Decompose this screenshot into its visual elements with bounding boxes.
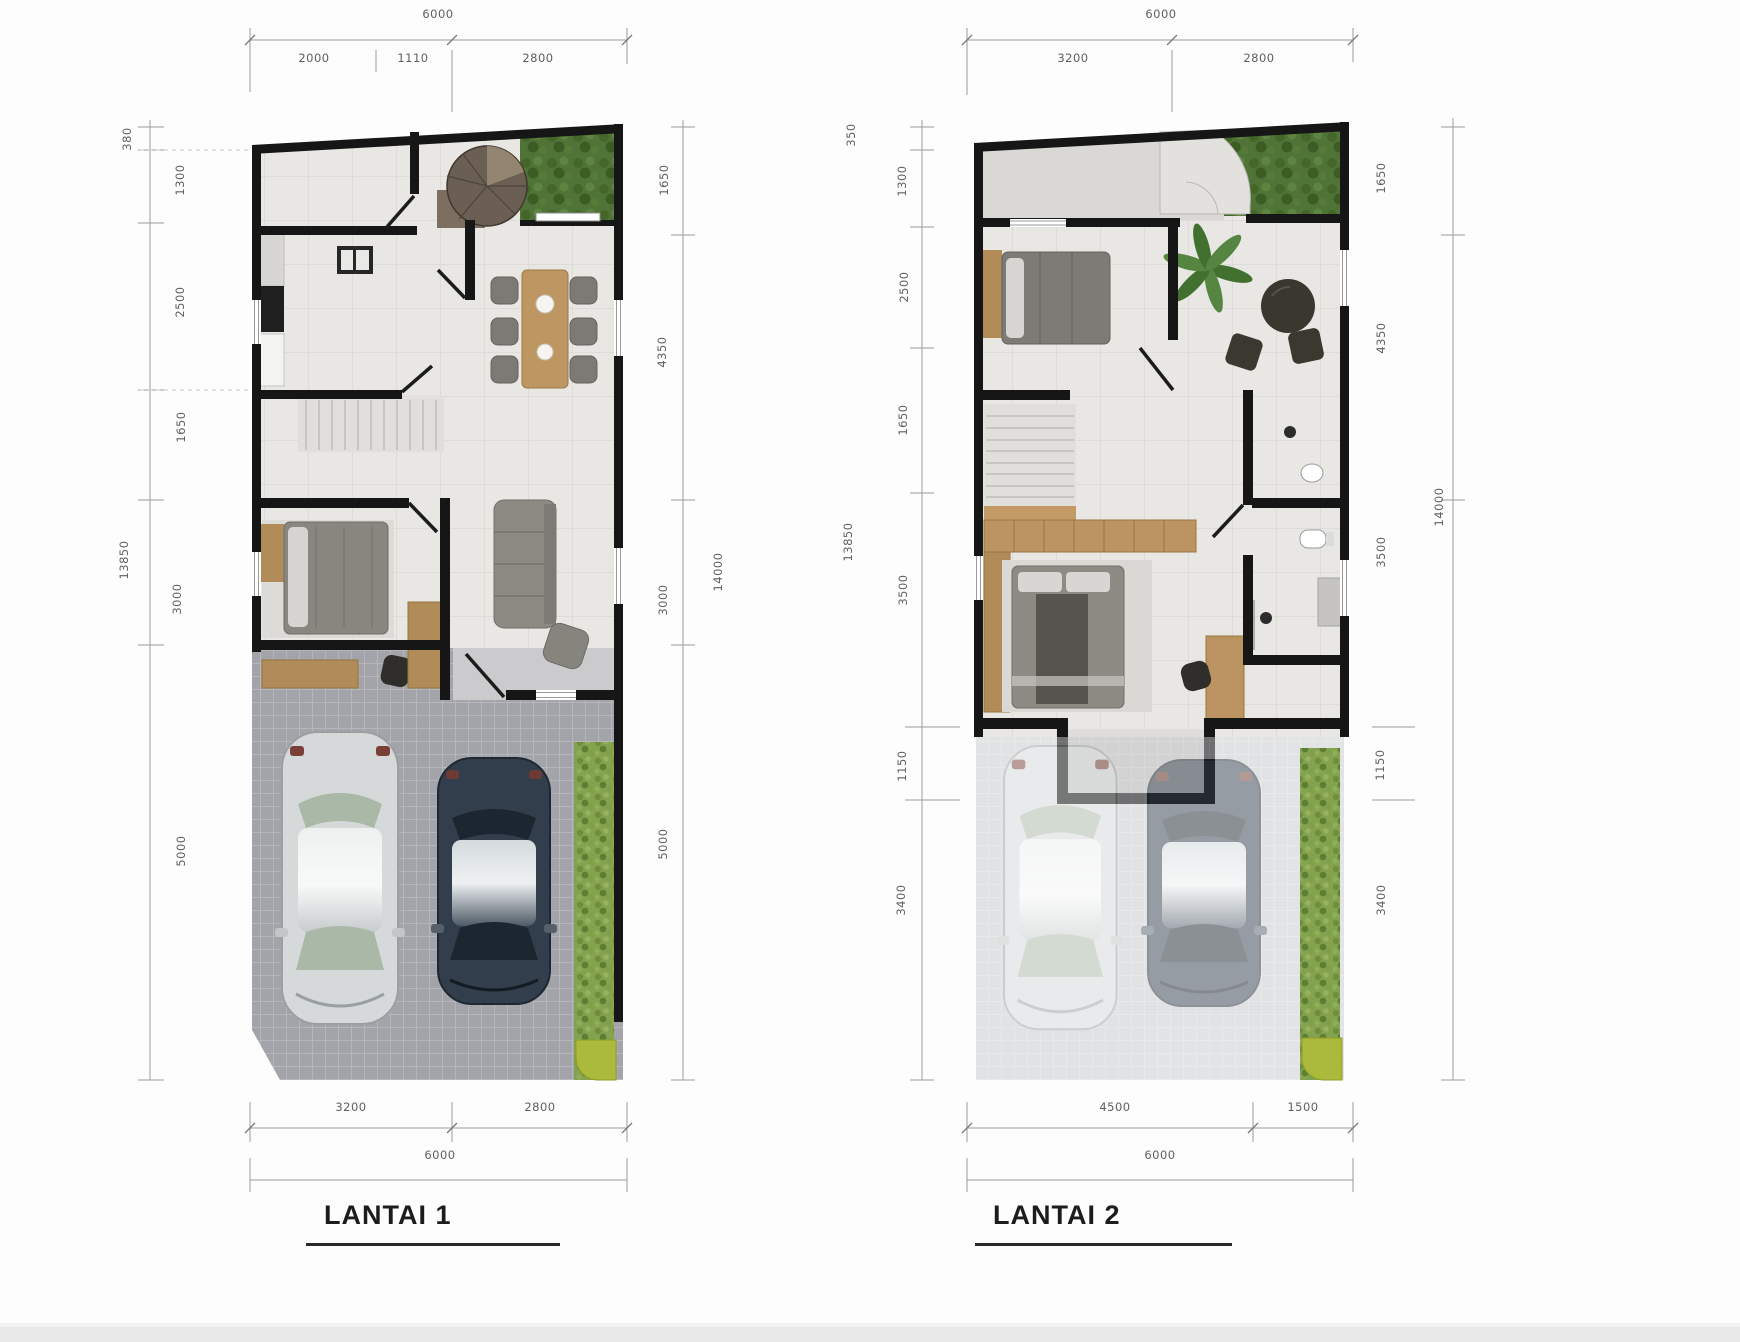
- dim-label: 6000: [422, 7, 453, 21]
- car-silver-icon: [275, 732, 405, 1024]
- garden-strip: [520, 130, 620, 224]
- lantai2-plan: [974, 122, 1349, 1080]
- window-sill: [536, 213, 600, 221]
- dim-label: 3200: [1057, 51, 1088, 65]
- dim-label: 2000: [298, 51, 329, 65]
- stairs2-icon: [984, 404, 1076, 520]
- dim-label: 3400: [1374, 884, 1388, 915]
- dim-label: 13850: [841, 522, 855, 561]
- dim-label: 4350: [655, 336, 669, 367]
- dim-label: 13850: [117, 540, 131, 579]
- dim-label: 1650: [657, 164, 671, 195]
- dim-label: 4350: [1374, 322, 1388, 353]
- dim-label: 1150: [895, 750, 909, 781]
- dim-label: 4500: [1099, 1100, 1130, 1114]
- dim-label: 6000: [424, 1148, 455, 1162]
- dim-label: 14000: [711, 552, 725, 591]
- dim-label: 3000: [656, 584, 670, 615]
- dim-label: 5000: [174, 835, 188, 866]
- dim-label: 2800: [524, 1100, 555, 1114]
- lantai1-title-text: LANTAI 1: [324, 1200, 452, 1230]
- carport-ghost: [976, 737, 1344, 1080]
- footer-strip: [0, 1323, 1740, 1342]
- dim-label: 2500: [173, 286, 187, 317]
- dining-table-icon: [491, 270, 597, 388]
- dim-label: 3000: [170, 583, 184, 614]
- dim-label: 3200: [335, 1100, 366, 1114]
- plans-drawing: [0, 0, 1740, 1342]
- dim-label: 3400: [894, 884, 908, 915]
- car-dark-icon: [431, 758, 557, 1004]
- dim-label: 2800: [522, 51, 553, 65]
- dim-label: 1650: [1374, 162, 1388, 193]
- lantai1-plan: [252, 124, 623, 1080]
- dim-label: 14000: [1432, 487, 1446, 526]
- dim-label: 350: [844, 123, 858, 146]
- hedge-strip: [574, 742, 614, 1080]
- dim-label: 6000: [1144, 1148, 1175, 1162]
- dim-label: 1650: [896, 404, 910, 435]
- dim-label: 380: [120, 127, 134, 150]
- dim-label: 3500: [896, 574, 910, 605]
- dim-label: 2800: [1243, 51, 1274, 65]
- dim-label: 2500: [897, 271, 911, 302]
- dim-label: 1650: [174, 411, 188, 442]
- dim-label: 6000: [1145, 7, 1176, 21]
- bedroom2-icons: [980, 250, 1110, 344]
- stairs-icon: [298, 398, 444, 452]
- lantai1-title: LANTAI 1: [306, 1200, 560, 1246]
- dim-label: 1300: [895, 165, 909, 196]
- planter-2: [1302, 1038, 1342, 1080]
- dim-label: 1110: [397, 51, 428, 65]
- floorplan-sheet: LANTAI 1 LANTAI 2 6000200011102800380130…: [0, 0, 1740, 1342]
- dim-label: 1150: [1373, 749, 1387, 780]
- lantai2-title-text: LANTAI 2: [993, 1200, 1121, 1230]
- lantai2-title: LANTAI 2: [975, 1200, 1232, 1246]
- dim-label: 5000: [656, 828, 670, 859]
- hedge-strip-2: [1300, 748, 1340, 1080]
- dim-label: 1500: [1287, 1100, 1318, 1114]
- dim-label: 1300: [173, 164, 187, 195]
- dim-label: 3500: [1374, 536, 1388, 567]
